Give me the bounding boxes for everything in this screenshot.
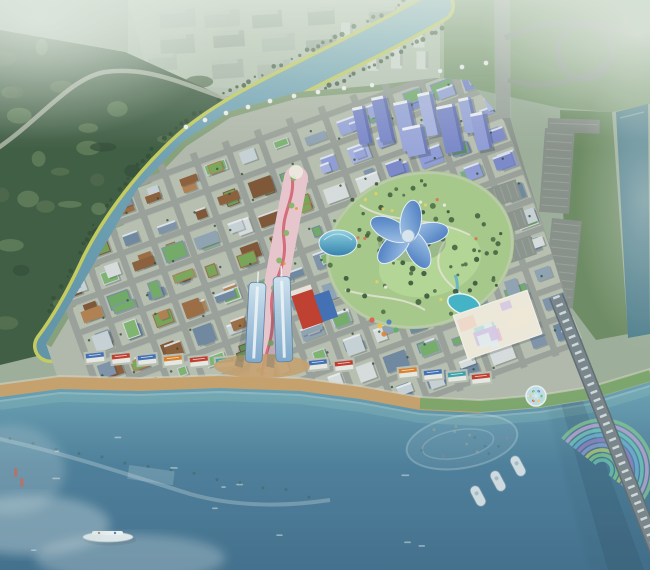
tone-overlay (0, 0, 650, 570)
rendering-canvas (0, 0, 650, 570)
atmosphere (0, 0, 650, 570)
aerial-city-rendering (0, 0, 650, 570)
